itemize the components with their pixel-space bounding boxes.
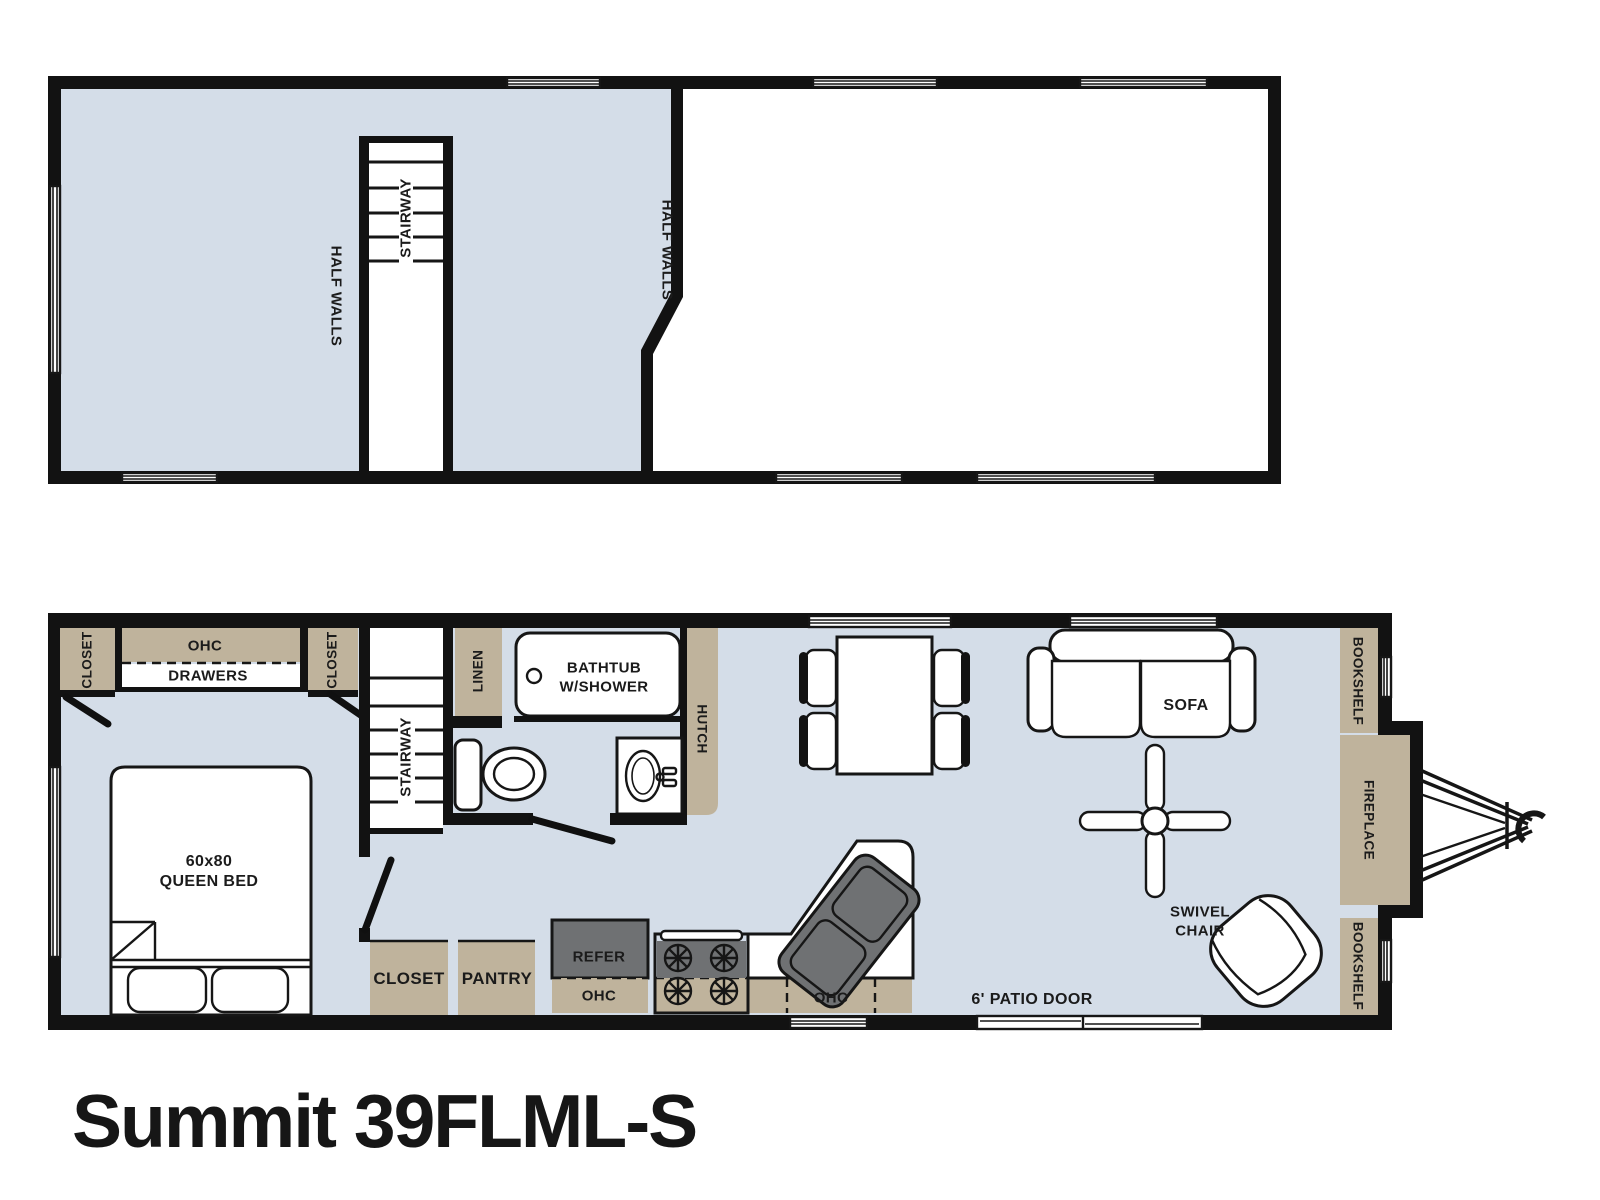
main-floor-plan	[48, 613, 1544, 1030]
upper-stairway-label: STAIRWAY	[398, 178, 415, 258]
drawers-label: DRAWERS	[168, 668, 247, 685]
patio-door-label: 6' PATIO DOOR	[971, 991, 1092, 1009]
dining-chair	[799, 650, 836, 706]
dining-chair	[934, 650, 970, 706]
bed-type-text: QUEEN BED	[139, 872, 279, 892]
sofa-label: SOFA	[1163, 697, 1208, 715]
bathtub-label: BATHTUB W/SHOWER	[534, 659, 674, 697]
bathtub-text-1: BATHTUB	[534, 659, 674, 678]
half-walls-left-label: HALF WALLS	[328, 246, 345, 347]
ohc-label: OHC	[188, 638, 223, 655]
floorplan-page: STAIRWAY HALF WALLS HALF WALLS CLOSET OH…	[0, 0, 1600, 1200]
fireplace-label: FIREPLACE	[1362, 780, 1377, 860]
queen-bed-label: 60x80 QUEEN BED	[139, 852, 279, 892]
swivel-chair-label: SWIVEL CHAIR	[1130, 903, 1270, 941]
closet-left-label: CLOSET	[80, 631, 95, 688]
dining-chair	[934, 713, 970, 769]
kitchen-closet-label: CLOSET	[373, 969, 444, 989]
page-title: Summit 39FLML-S	[72, 1078, 696, 1164]
sofa	[1028, 630, 1255, 737]
hutch-label: HUTCH	[695, 704, 710, 753]
ohc-kitchen-band	[655, 978, 912, 1013]
refer-label: REFER	[573, 949, 626, 966]
linen-label: LINEN	[471, 650, 486, 693]
bookshelf-bottom-label: BOOKSHELF	[1351, 922, 1366, 1010]
patio-door	[977, 1016, 1202, 1029]
swivel-text-2: CHAIR	[1130, 922, 1270, 941]
bathtub-text-2: W/SHOWER	[534, 678, 674, 697]
pillow	[128, 968, 206, 1012]
ohc-kitchen-left-label: OHC	[582, 988, 617, 1005]
floorplan-drawing	[0, 0, 1600, 1200]
swivel-text-1: SWIVEL	[1130, 903, 1270, 922]
pillow	[212, 968, 288, 1012]
bookshelf-top-label: BOOKSHELF	[1351, 637, 1366, 725]
dining-table	[837, 637, 932, 774]
trailer-hitch	[1420, 770, 1544, 881]
ohc-kitchen-right-label: OHC	[814, 990, 849, 1007]
pantry-label: PANTRY	[462, 969, 532, 989]
bathroom-sink	[617, 738, 682, 814]
dining-chair	[799, 713, 836, 769]
dining-set	[799, 637, 970, 774]
main-stairway-label: STAIRWAY	[398, 717, 415, 797]
bed-size-text: 60x80	[139, 852, 279, 872]
closet-right-label: CLOSET	[325, 631, 340, 688]
hitch-coupler-icon	[1518, 813, 1544, 841]
half-walls-right-label: HALF WALLS	[659, 200, 676, 301]
